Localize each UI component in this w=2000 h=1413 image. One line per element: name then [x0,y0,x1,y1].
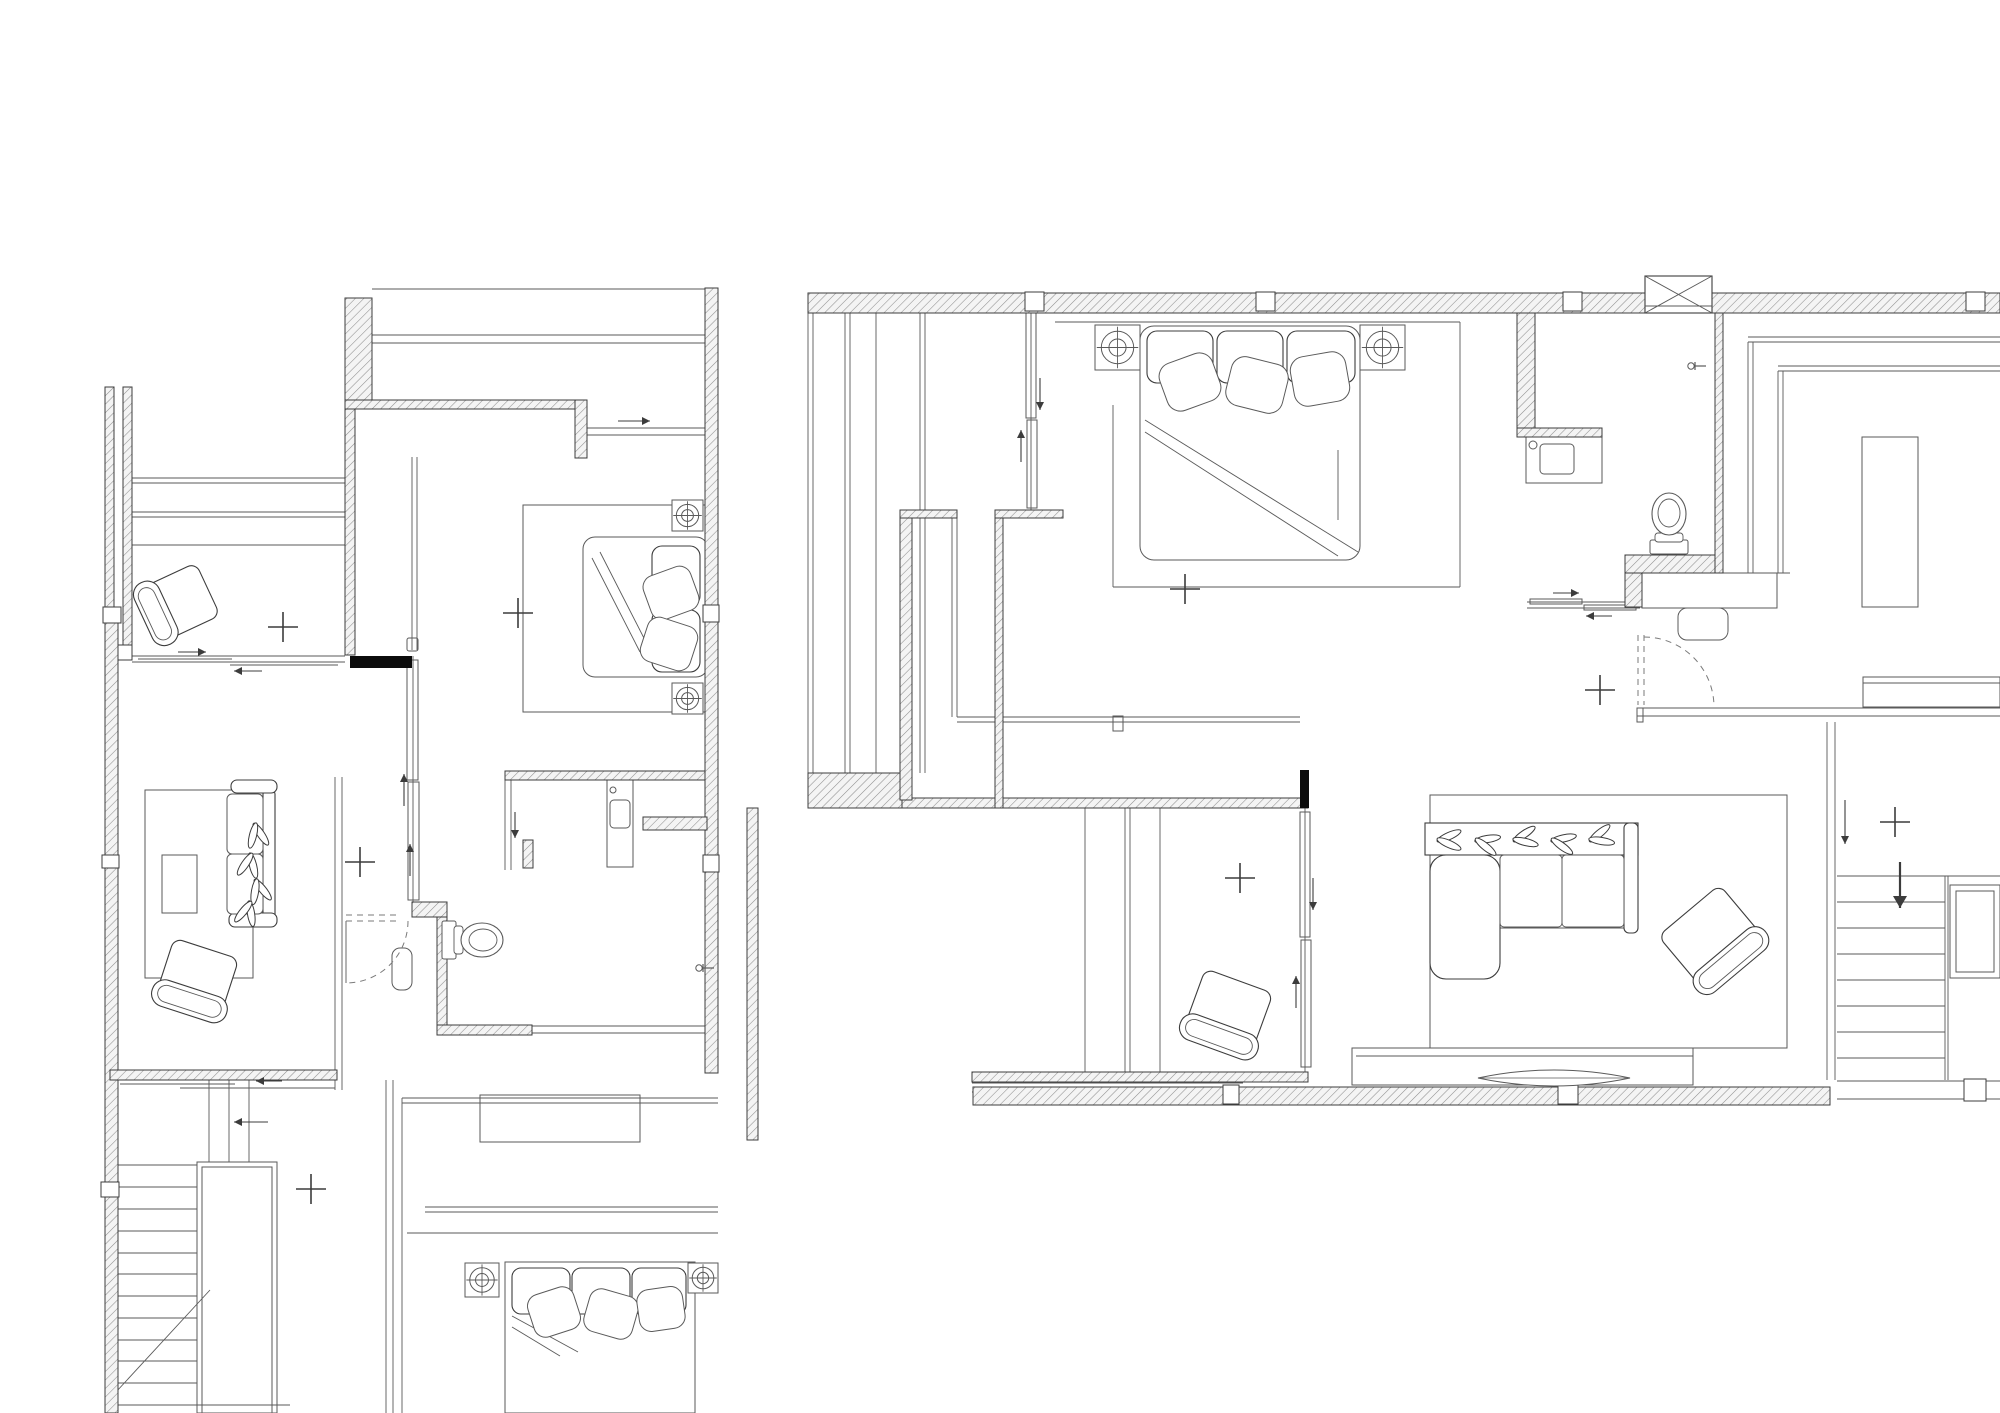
wall-hatched [902,798,1308,808]
wall-hatched [575,400,587,458]
wall-hatched [523,840,533,868]
sofa-armrest [1624,823,1638,933]
wall-hatched [747,808,758,1140]
sofa-cushion [1500,855,1562,927]
wall-hatched [643,817,707,830]
bed-pillow [1288,350,1352,409]
ceiling-speaker-symbol [1360,325,1405,370]
pillow-shape [1288,350,1352,409]
toilet-symbol [442,921,503,959]
wall-hatched [437,1025,532,1035]
wall-hatched [123,387,132,647]
wall-hatched [345,400,583,409]
wall-hatched [1625,555,1715,573]
sofa-chaise [1430,855,1500,979]
wall-hatched [995,510,1063,518]
wall-column-break [101,1182,119,1197]
wall-hatched [1715,313,1723,573]
wall-hatched [412,902,447,917]
wall-hatched [110,1070,337,1080]
ceiling-speaker-symbol [672,683,703,714]
ceiling-speaker-symbol [465,1263,499,1297]
wall-column-break [1025,292,1044,311]
wall-hatched [900,518,912,800]
sofa-cushion [1562,855,1624,927]
wall-column-break [1964,1079,1986,1101]
wall-hatched [808,293,2000,313]
sofa-armrest [231,780,277,793]
wall-hatched [900,510,957,518]
wall-column-break [102,855,119,868]
wall-hatched [973,1087,1830,1105]
wall-hatched [705,288,718,1073]
wall-column-break [1256,292,1275,311]
wall-column-break [1966,292,1985,311]
wall-hatched [995,518,1003,808]
ceiling-speaker-symbol [1095,325,1140,370]
wall-solid-black [350,656,412,668]
wall-hatched [505,771,705,780]
wall-hatched [345,298,372,401]
wall-hatched [1517,313,1535,428]
wall-column-break [1558,1085,1578,1104]
floorplan-stage [0,0,2000,1413]
bed-pillow [635,1285,686,1333]
wall-solid-black [1300,770,1309,808]
wall-hatched [105,387,114,607]
ceiling-speaker-symbol [672,500,703,531]
wall-hatched [808,773,912,808]
wall-column-break [103,607,121,623]
wall-hatched [105,623,118,1413]
wall-column-break [703,855,719,872]
wall-column-break [703,605,719,622]
wall-hatched [1625,573,1642,607]
pillow-shape [635,1285,686,1333]
floorplan-svg [0,0,2000,1413]
wall-column-break [118,645,132,660]
wall-hatched [345,409,355,655]
ceiling-speaker-symbol [688,1263,718,1293]
sofa-back [263,790,275,922]
toilet-symbol [1650,493,1688,554]
wall-hatched [1517,428,1602,437]
wall-column-break [1223,1085,1239,1104]
wall-hatched [972,1072,1308,1082]
shaft-x-symbol [1645,276,1712,313]
wall-column-break [1563,292,1582,311]
